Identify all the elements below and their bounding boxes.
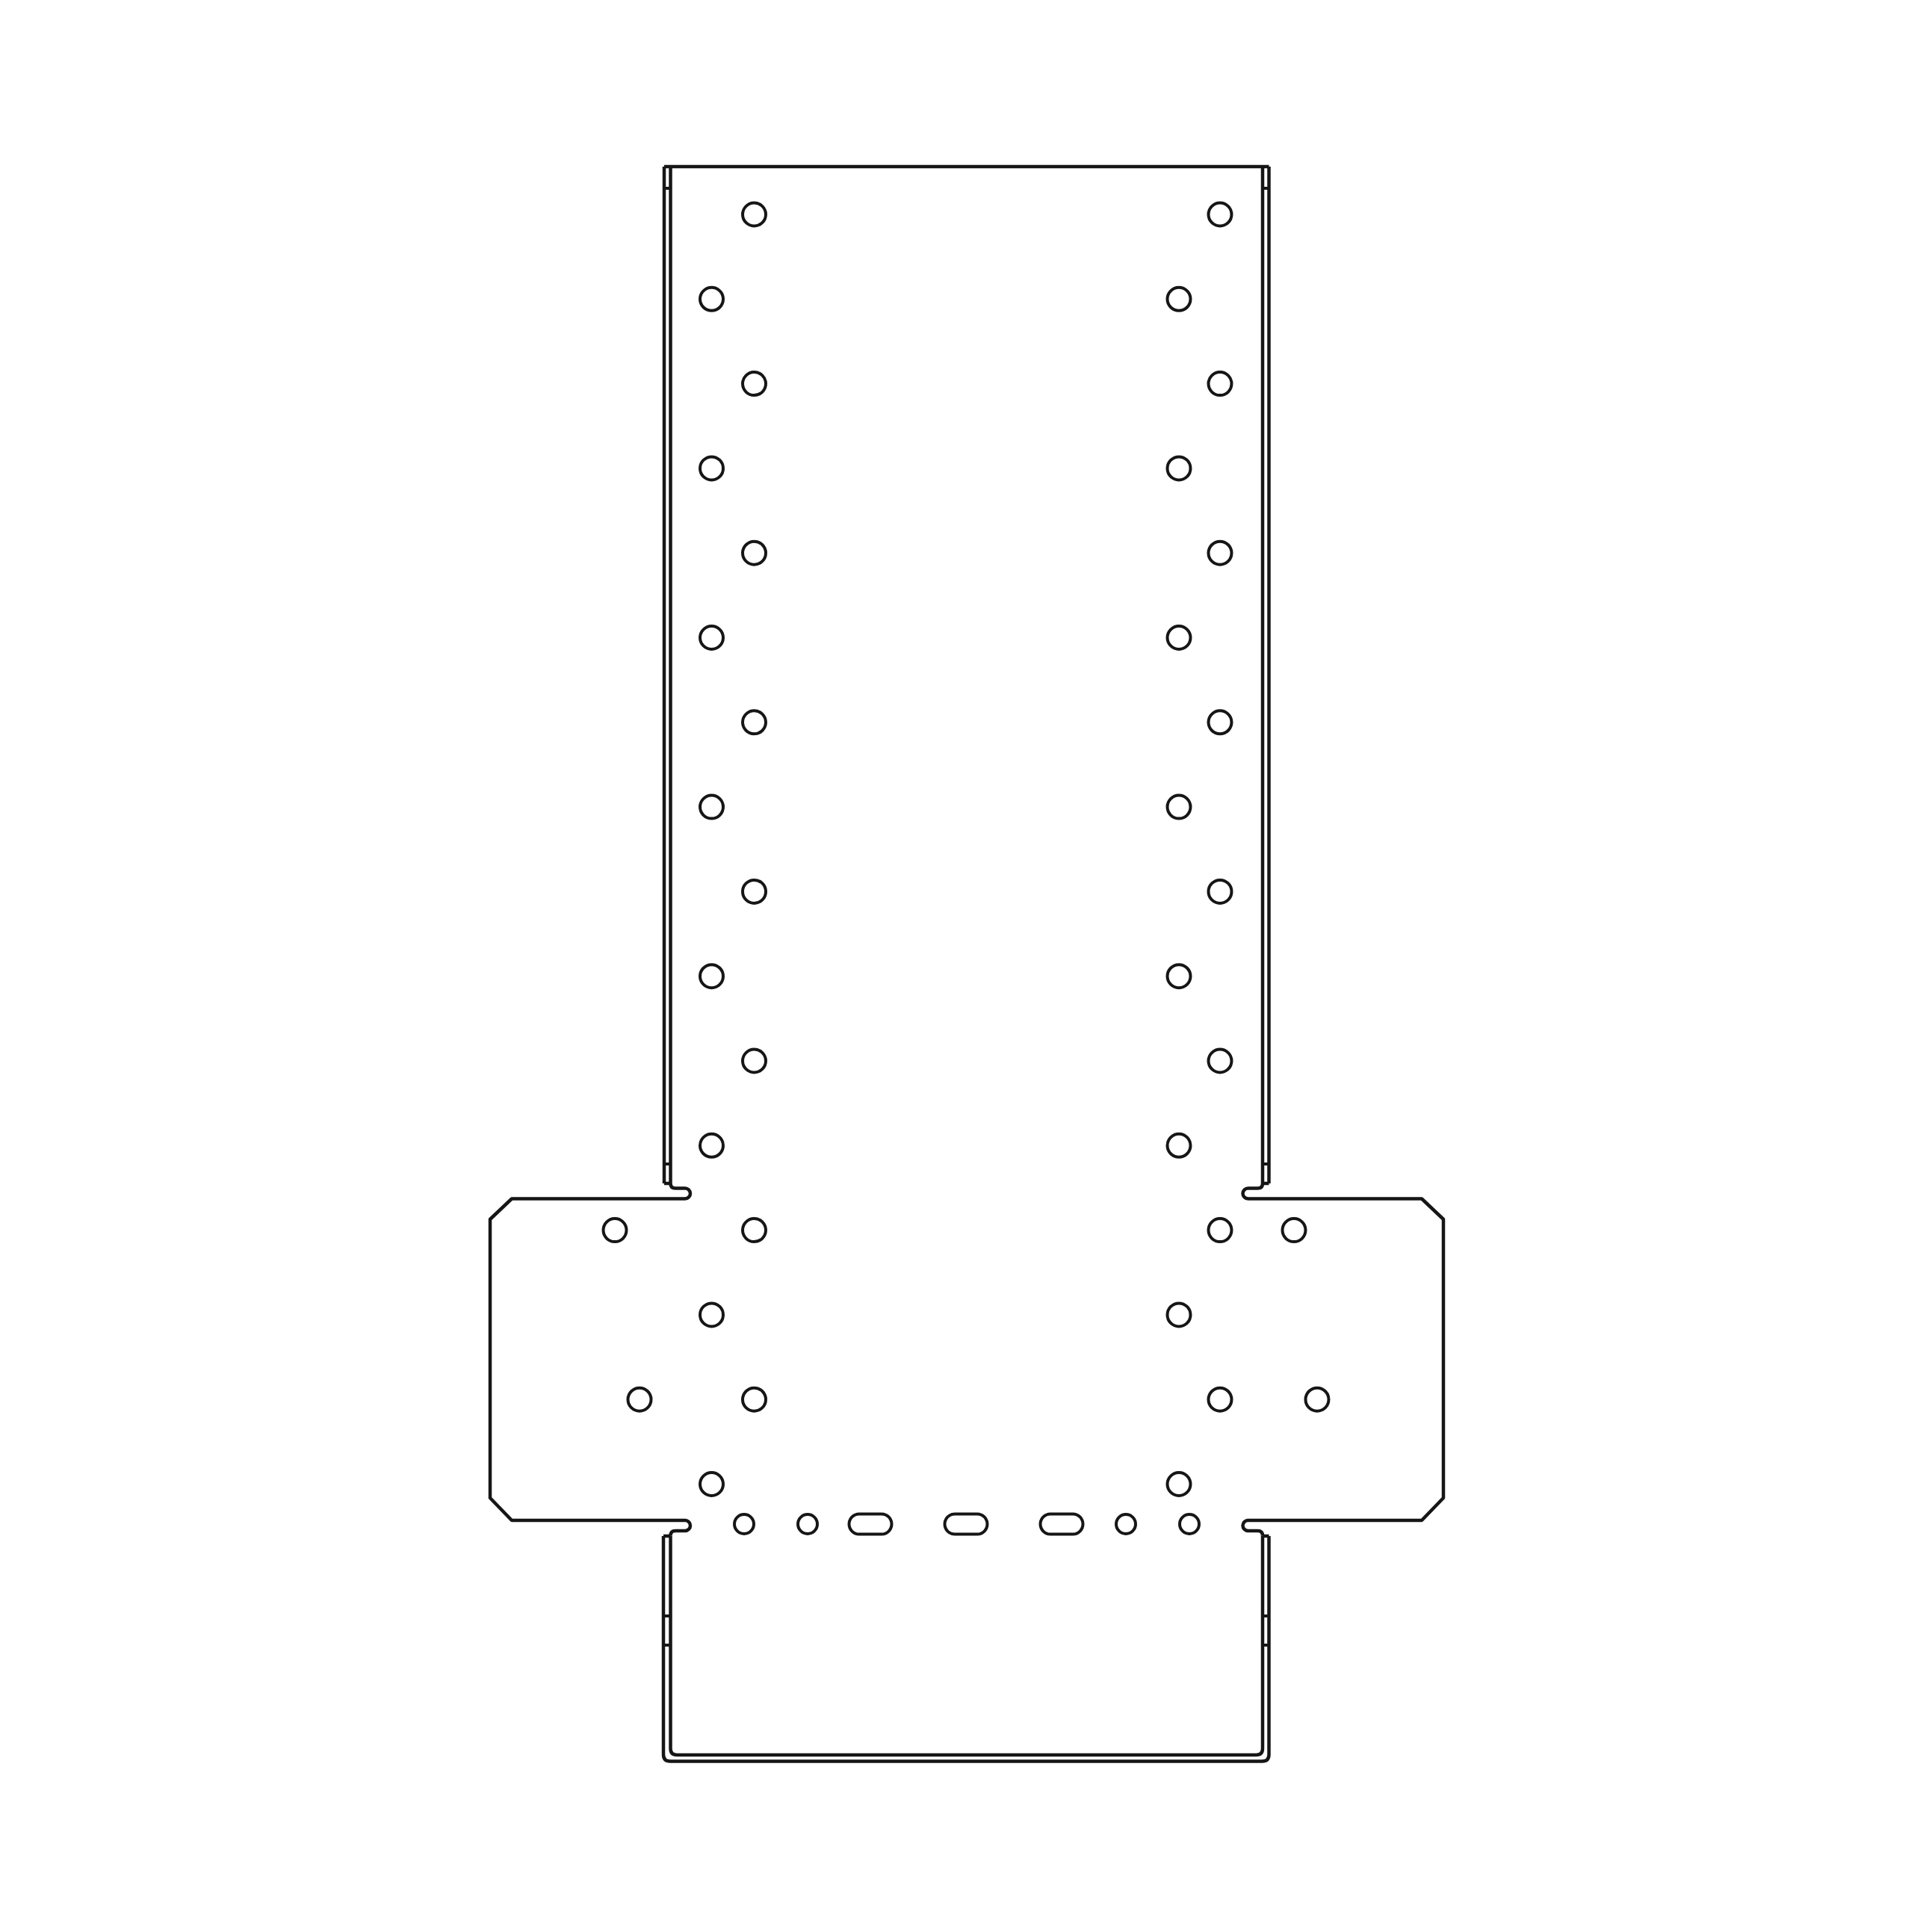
connector-flat-pattern-drawing xyxy=(0,0,1932,1932)
drawing-stage xyxy=(0,0,1932,1932)
drawing-background xyxy=(0,0,1932,1932)
